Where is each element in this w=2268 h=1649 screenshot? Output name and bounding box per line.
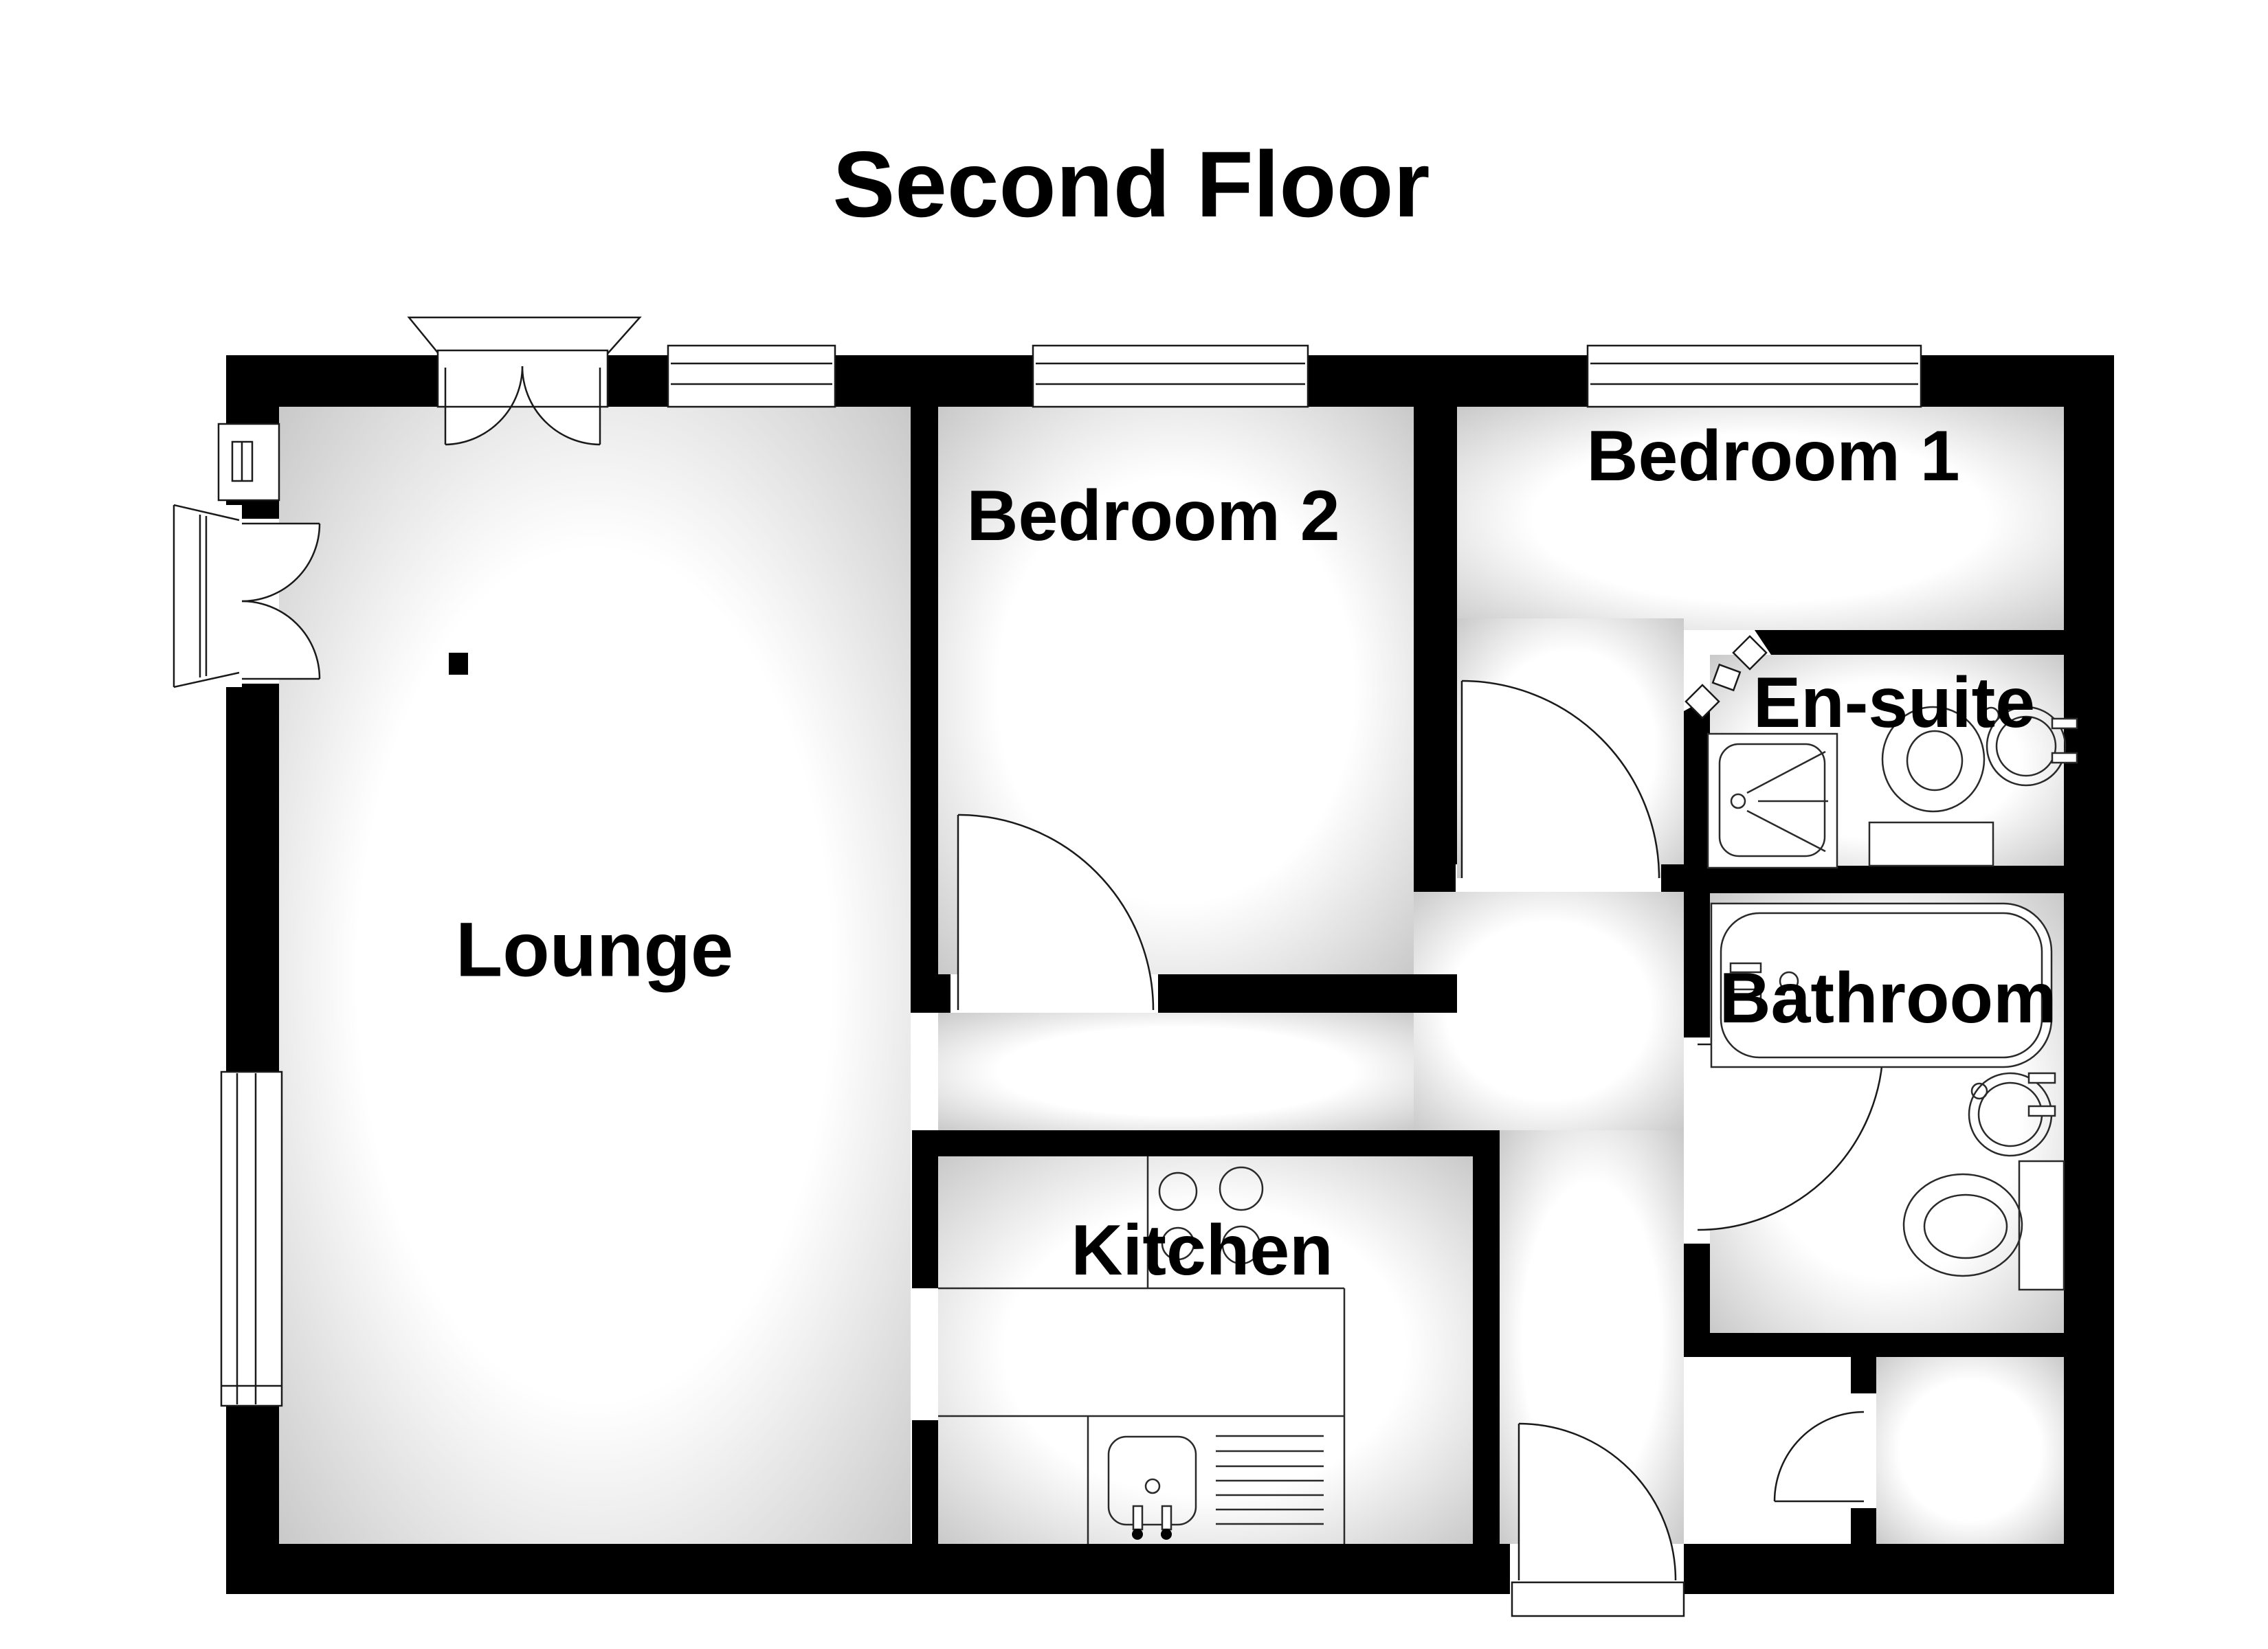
floor-plan: Second Floor: [0, 0, 2268, 1649]
room-floor-closet: [1876, 1357, 2064, 1544]
wall-left-3: [226, 684, 279, 1072]
bay-window: [174, 505, 242, 687]
page-title: Second Floor: [833, 132, 1430, 236]
wall-bottom-right: [1684, 1544, 2114, 1594]
wall-top-2: [606, 355, 668, 407]
label-lounge: Lounge: [456, 907, 733, 993]
bedroom2-window: [1033, 346, 1308, 407]
label-bathroom: Bathroom: [1719, 958, 2056, 1038]
wall-closet-stub-upper: [1851, 1357, 1876, 1393]
lounge-left-tall-window: [221, 1072, 282, 1406]
shower-tray: [1708, 734, 1837, 868]
wall-bedroom2-south: [1158, 974, 1457, 1013]
lounge-left-small-window: [219, 424, 279, 500]
wall-bedroom1-door-stub: [1661, 864, 1684, 892]
wall-ensuite-north: [1755, 630, 2064, 655]
closet-door-swing: [1775, 1412, 1864, 1501]
wall-left-1: [226, 355, 279, 424]
wall-top-3: [835, 355, 1033, 407]
wall-top-4: [1308, 355, 1588, 407]
wall-kitchen-east: [1473, 1130, 1500, 1544]
wall-kitchen-north: [938, 1130, 1473, 1156]
wall-bathroom-south: [1684, 1333, 2064, 1357]
wall-ensuite-west: [1684, 697, 1710, 1037]
wall-lounge-bedroom2-jamb: [911, 974, 950, 1013]
room-floor-hall-upper: [938, 1013, 1414, 1130]
label-ensuite: En-suite: [1753, 663, 2035, 743]
wall-lounge-bedroom2: [911, 407, 938, 974]
bedroom1-window: [1588, 346, 1921, 407]
wall-left-4: [226, 1406, 279, 1544]
wall-post-lounge: [449, 653, 468, 675]
wall-bedroom1-bedroom2-foot: [1414, 864, 1456, 892]
wall-closet-stub-lower: [1851, 1508, 1876, 1544]
label-kitchen: Kitchen: [1071, 1211, 1333, 1290]
wall-right: [2064, 355, 2114, 1594]
wall-bedroom1-bedroom2: [1414, 407, 1457, 864]
wall-kitchen-west-lower: [912, 1420, 938, 1544]
wall-bottom-left: [226, 1544, 1510, 1594]
wall-kitchen-west-upper: [912, 1130, 938, 1288]
lounge-top-window: [668, 346, 835, 407]
front-door-threshold: [1512, 1582, 1684, 1616]
wall-ensuite-bathroom: [1684, 866, 2064, 893]
label-bedroom1: Bedroom 1: [1586, 416, 1959, 496]
label-bedroom2: Bedroom 2: [966, 476, 1339, 556]
